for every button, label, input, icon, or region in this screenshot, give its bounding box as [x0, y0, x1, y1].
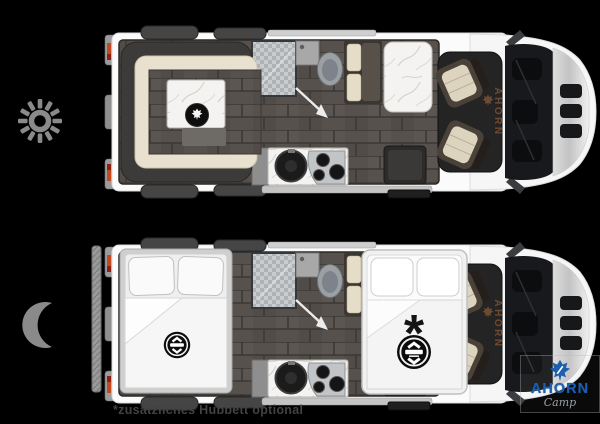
kitchen-tap — [288, 149, 295, 153]
taillight-icon — [107, 170, 111, 181]
awning-rail — [268, 30, 376, 36]
taillight-icon — [107, 43, 111, 54]
toilet — [322, 59, 338, 81]
washbasin-tap — [300, 45, 304, 49]
screenshot-canvas: AHORN — [0, 0, 600, 424]
pillow — [128, 256, 174, 296]
lounge-mat — [182, 128, 226, 146]
dinette-backrest — [362, 43, 380, 101]
pillow — [371, 258, 413, 296]
brand-logo-subname: Camp — [521, 397, 599, 409]
rear-bed — [120, 249, 232, 393]
brand-logo: AHORN Camp — [520, 355, 600, 413]
grille — [560, 104, 582, 118]
dinette-table — [384, 42, 432, 112]
lift-bed-asterisk: * — [404, 305, 425, 363]
dinette-cushion — [347, 74, 361, 101]
kitchen-sink — [285, 160, 297, 172]
roof-box — [141, 185, 198, 198]
entry-step — [388, 190, 430, 198]
lift-bed: * — [362, 250, 467, 394]
taillight-icon — [107, 54, 111, 60]
roof-box — [214, 185, 266, 196]
stove-burner — [330, 165, 345, 180]
stove-burner — [314, 170, 325, 181]
washbasin-counter — [296, 41, 319, 65]
pillow — [417, 258, 459, 296]
footnote: *zusätzliches Hubbett optional — [113, 403, 303, 417]
moon-icon — [22, 302, 52, 348]
grille — [560, 84, 582, 98]
cab-brand-label-night: AHORN — [492, 299, 503, 348]
pillow — [177, 256, 223, 296]
rear-ladder — [92, 246, 101, 392]
floorplan-day: AHORN — [105, 26, 596, 198]
dinette-cushion — [347, 44, 361, 71]
bed-convert-badge — [164, 332, 190, 358]
floorplans-graphic: AHORN — [0, 0, 600, 424]
roof-box — [214, 28, 266, 39]
sun-icon — [18, 99, 62, 143]
taillight-icon — [107, 164, 111, 170]
entry-bench — [388, 150, 422, 180]
brand-logo-name: AHORN — [521, 382, 599, 397]
rear-lounge — [121, 42, 261, 182]
roof-box — [141, 26, 198, 39]
stove-burner — [317, 154, 330, 167]
grille — [560, 124, 582, 138]
cab-brand-label-day: AHORN — [492, 87, 503, 136]
maple-leaf-icon — [548, 358, 572, 382]
